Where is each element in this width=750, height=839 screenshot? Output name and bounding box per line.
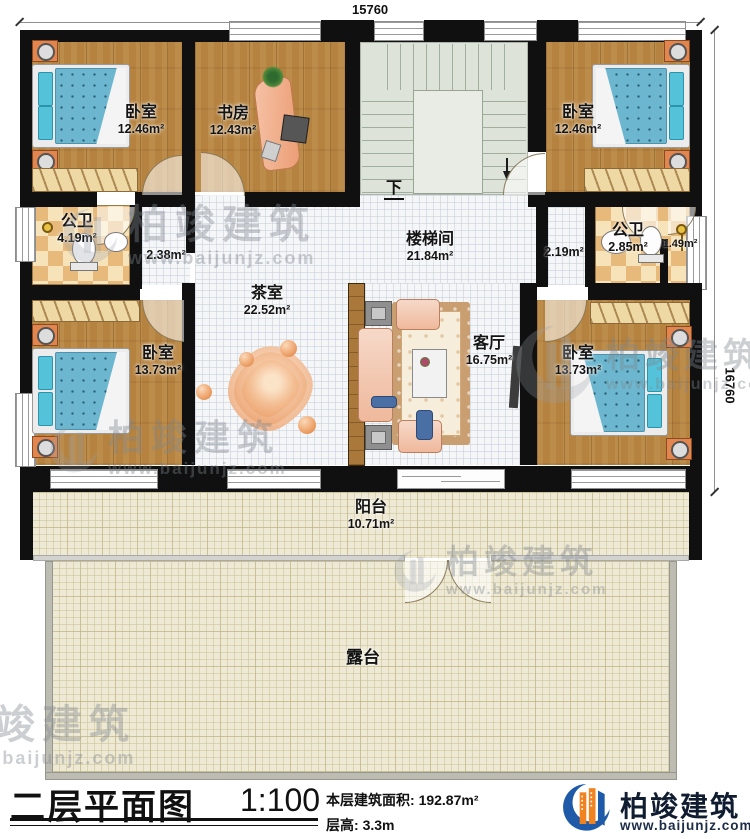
stair-hall-floor (195, 195, 536, 283)
toilet-brush (42, 222, 53, 233)
sink (104, 232, 128, 252)
stair-down-label: 下 (384, 180, 404, 200)
brand-url: www.baijunjz.com (620, 818, 750, 833)
armchair (396, 299, 440, 330)
wardrobe (590, 302, 690, 324)
stair-landing (413, 90, 483, 194)
label-stairwell: 楼梯间21.84m² (406, 231, 454, 263)
tea-stool (298, 416, 316, 434)
label-hall-left: 2.38m² (146, 248, 186, 262)
window (686, 216, 707, 290)
shower-head (676, 224, 687, 235)
balcony-wall-right (689, 492, 702, 560)
wall-bedroomtl-study (182, 42, 195, 207)
wall-segment (32, 192, 97, 207)
label-bedroom-tl: 卧室12.46m² (118, 104, 165, 136)
window (15, 207, 36, 262)
stair-treads-top (387, 44, 515, 90)
plan-scale: 1:100 (240, 782, 320, 819)
label-bedroom-br: 卧室13.73m² (555, 345, 602, 377)
wall-pier (424, 20, 484, 42)
terrace-wall-left (45, 561, 53, 780)
wall-stair-bedroomtr (528, 42, 546, 152)
stair-arrow-stem (506, 158, 508, 172)
label-tea-room: 茶室22.52m² (244, 285, 291, 317)
terrace-floor (45, 561, 677, 780)
wall-living-bedroombr (520, 283, 537, 465)
window (374, 21, 424, 41)
balcony-wall-left (20, 492, 33, 560)
window (227, 469, 321, 489)
label-bedroom-bl: 卧室13.73m² (135, 345, 182, 377)
toilet-tank (70, 262, 98, 271)
top-dimension: 15760 (352, 2, 388, 17)
bed-bl (32, 348, 130, 434)
tea-stool (280, 340, 297, 357)
nightstand (32, 324, 58, 346)
title-underline (10, 818, 318, 821)
label-living-room: 客厅16.75m² (466, 335, 513, 367)
title-underline-thin (10, 825, 318, 826)
wardrobe (32, 168, 138, 192)
side-table (365, 425, 392, 450)
tea-stool (239, 352, 254, 367)
nightstand (32, 40, 58, 62)
wall-hallleft-stub (186, 205, 195, 253)
wall-segment (245, 192, 345, 207)
right-dimension: 16760 (723, 367, 738, 403)
coffee-table (412, 349, 447, 398)
bed-tl (32, 64, 130, 148)
window (578, 21, 686, 41)
nightstand (32, 436, 58, 458)
toilet-tank (638, 254, 664, 263)
wall-bathright-left (585, 205, 595, 287)
side-table (365, 301, 392, 326)
window (571, 469, 686, 489)
dimension-tick (710, 487, 719, 496)
nightstand (666, 326, 692, 348)
floor-area-text: 本层建筑面积: 192.87m² (326, 790, 479, 810)
table-flowers (420, 357, 430, 367)
window (50, 469, 158, 489)
plant-icon (262, 66, 284, 88)
label-bedroom-tr: 卧室12.46m² (555, 104, 602, 136)
person-figure (371, 396, 397, 408)
right-dimension-line (714, 30, 715, 492)
terrace-wall-right (669, 561, 677, 780)
desk-chair (280, 114, 309, 143)
floor-height-text: 层高: 3.3m (326, 815, 394, 835)
plan-title: 二层平面图 (10, 779, 195, 830)
dimension-tick (696, 17, 705, 26)
window (229, 21, 321, 41)
label-hall-right: 2.19m² (544, 245, 584, 259)
wall-pier (537, 20, 578, 42)
window (484, 21, 537, 41)
label-bath-left: 公卫4.19m² (57, 213, 97, 245)
person-figure (416, 410, 433, 440)
wardrobe (584, 168, 690, 192)
nightstand (664, 40, 690, 62)
wall-bedroombl-top (20, 285, 140, 300)
label-study: 书房12.43m² (210, 105, 257, 137)
label-shower: 1.49m² (663, 238, 698, 250)
hall-left-floor (142, 205, 190, 285)
wall-bedroombr-top (588, 283, 702, 300)
nightstand (666, 438, 692, 460)
stair-treads-left (362, 90, 413, 193)
balcony-sliding-door (397, 469, 505, 489)
wall-pier (321, 20, 374, 42)
tea-stool (196, 384, 212, 400)
brand-logo-icon (563, 782, 613, 839)
wall-study-stair (345, 42, 360, 207)
wall-bedroomtr-bottom (528, 192, 702, 207)
label-terrace: 露台 (346, 648, 380, 667)
label-bath-right: 公卫2.85m² (608, 222, 648, 254)
label-balcony: 阳台10.71m² (348, 499, 395, 531)
floor-plan: 15760 16760 下 (0, 0, 750, 839)
bed-tr (592, 64, 690, 148)
wardrobe (32, 300, 140, 322)
